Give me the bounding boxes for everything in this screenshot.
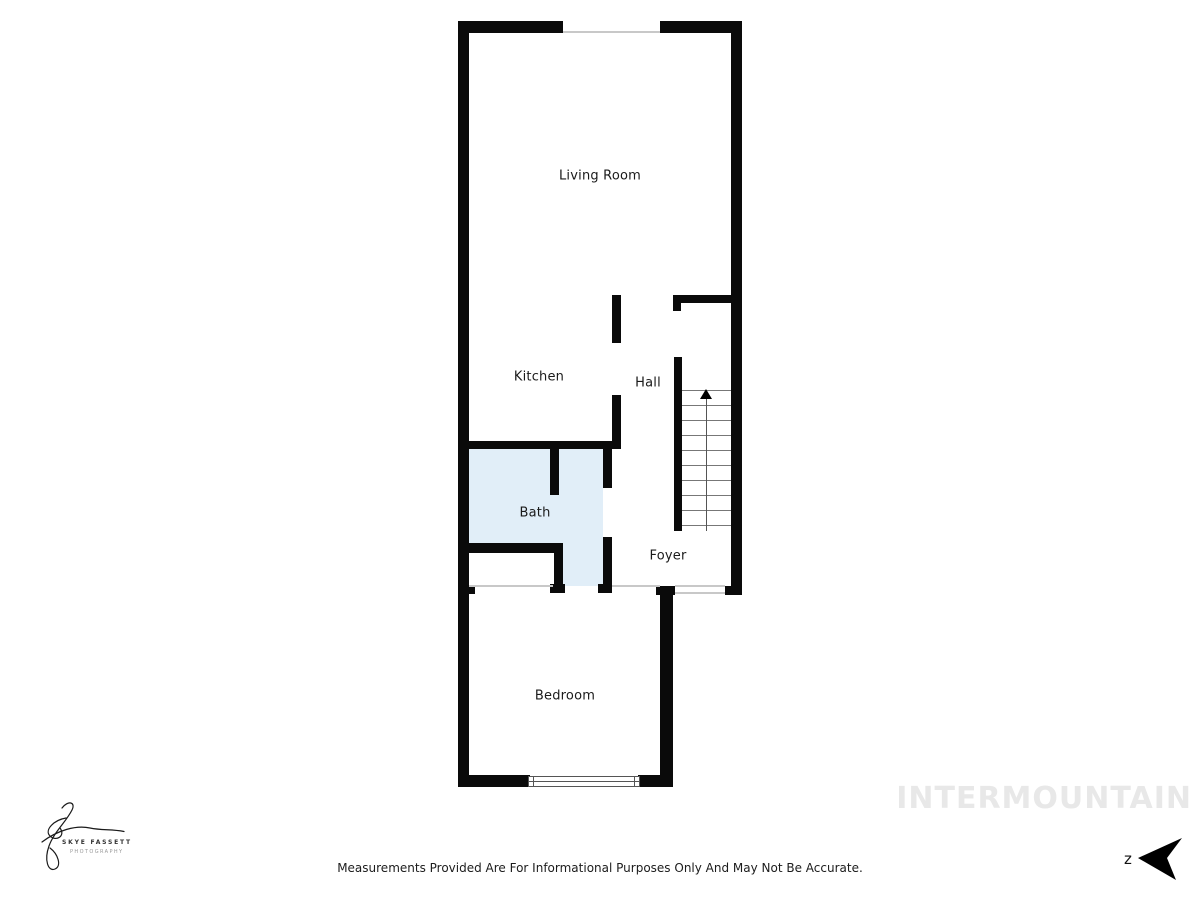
wall-bedroom-right-cap xyxy=(656,586,675,595)
watermark-text: INTERMOUNTAIN xyxy=(896,781,1192,816)
wall-kitchen-hall-upper xyxy=(612,295,621,343)
floor-plan: Living Room Kitchen Hall Bath Foyer Bedr… xyxy=(0,0,1200,900)
room-label-bath: Bath xyxy=(519,506,550,521)
wall-right-exterior xyxy=(731,21,742,595)
wall-left-exterior xyxy=(458,21,469,787)
foyer-entry-opening-b xyxy=(675,592,725,594)
wall-right-bottom-cap xyxy=(725,586,742,595)
floor-plan-page: Living Room Kitchen Hall Bath Foyer Bedr… xyxy=(0,0,1200,900)
wall-kitchen-hall-lower xyxy=(612,395,621,449)
living-room-window-opening xyxy=(563,31,660,33)
bath-corridor-fill xyxy=(563,449,603,586)
disclaimer-text: Measurements Provided Are For Informatio… xyxy=(0,861,1200,875)
stair-center-line xyxy=(706,398,707,531)
room-label-foyer: Foyer xyxy=(649,549,686,564)
wall-corridor-cap-right xyxy=(598,584,612,593)
bedroom-top-opening-left xyxy=(469,585,553,587)
window-left-tick xyxy=(533,777,534,786)
foyer-entry-opening-a xyxy=(675,585,725,587)
wall-bath-corridor-left xyxy=(554,543,563,588)
stair-up-arrow-icon xyxy=(700,389,712,399)
window-right-tick xyxy=(634,777,635,786)
wall-bath-right-upper xyxy=(603,441,612,488)
logo-title: SKYE FASSETT xyxy=(62,839,132,846)
wall-top-right xyxy=(660,21,742,33)
room-label-living-room: Living Room xyxy=(559,169,641,184)
room-label-hall: Hall xyxy=(635,376,661,391)
wall-stair-left xyxy=(674,357,682,531)
wall-bath-bottom xyxy=(458,543,563,553)
room-label-kitchen: Kitchen xyxy=(514,370,564,385)
logo-subtitle: PHOTOGRAPHY xyxy=(70,849,124,855)
wall-stairwell-top xyxy=(673,295,732,303)
wall-bedroom-bottom-right xyxy=(638,775,672,787)
bedroom-window-icon xyxy=(528,776,640,787)
wall-kitchen-bottom xyxy=(458,441,621,449)
bedroom-top-opening-right xyxy=(612,585,660,587)
room-label-bedroom: Bedroom xyxy=(535,689,595,704)
wall-bath-right-lower xyxy=(603,537,612,588)
window-mid-line xyxy=(529,781,639,782)
wall-bath-stub xyxy=(550,441,559,495)
wall-bedroom-bottom-left xyxy=(458,775,530,787)
wall-bedroom-right xyxy=(660,586,673,787)
wall-stairwell-top-stub xyxy=(673,295,681,311)
wall-top-left xyxy=(458,21,563,33)
compass-arrow-icon xyxy=(1136,836,1188,884)
